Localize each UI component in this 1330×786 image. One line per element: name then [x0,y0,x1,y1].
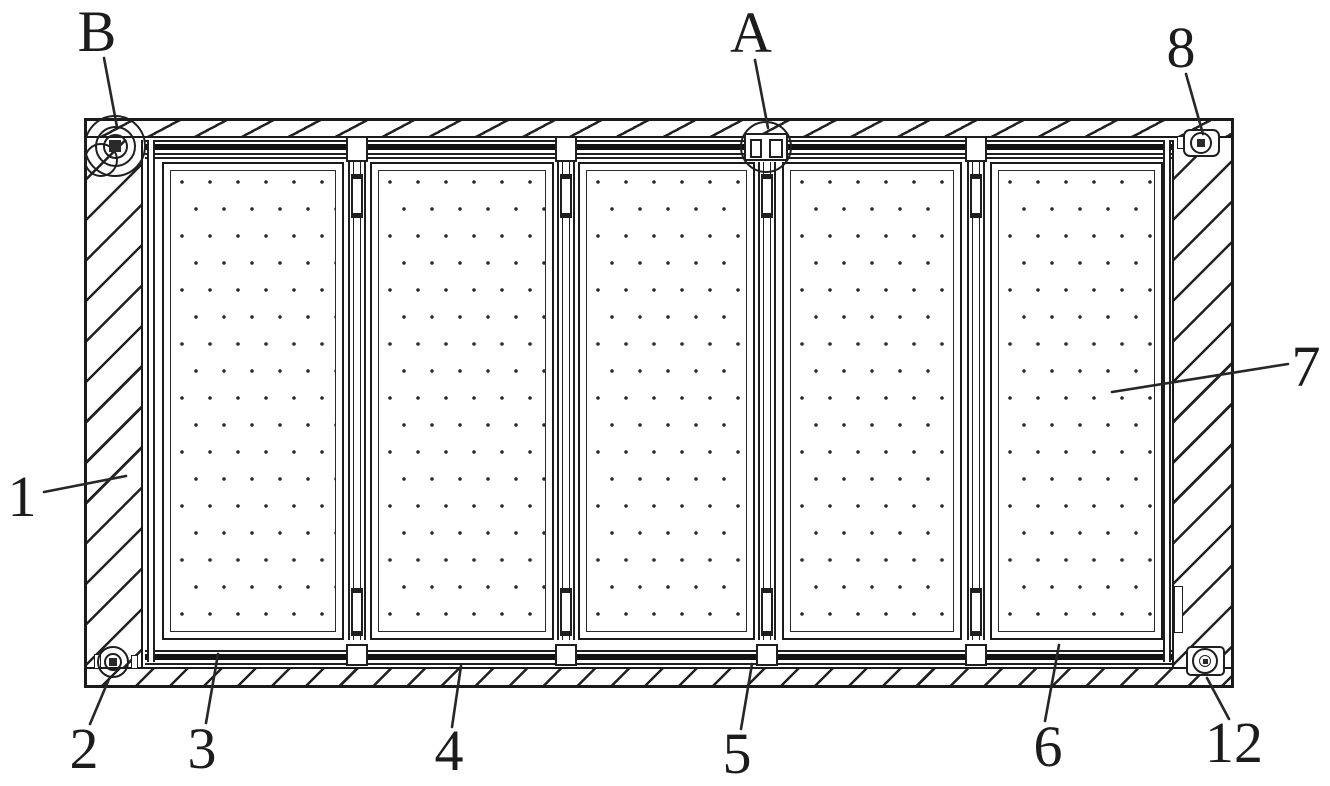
leader-line-B [104,58,117,127]
leader-line-6 [1045,645,1059,721]
ref-label-3: 3 [188,720,217,778]
patent-drawing-canvas: BA8172345612 [0,0,1330,786]
leader-line-7 [1112,364,1288,392]
ref-label-1: 1 [8,468,37,526]
leader-line-8 [1186,74,1203,134]
ref-label-4: 4 [435,722,464,780]
ref-label-B: B [78,3,117,61]
ref-label-12: 12 [1205,714,1263,772]
ref-label-7: 7 [1292,338,1321,396]
leader-line-5 [741,664,752,729]
ref-label-2: 2 [70,720,99,778]
ref-label-A: A [730,4,772,62]
ref-label-6: 6 [1034,718,1063,776]
ref-label-8: 8 [1167,19,1196,77]
leader-line-3 [206,654,218,723]
leader-lines-layer [0,0,1330,786]
leader-line-A [755,60,768,128]
leader-line-1 [44,476,126,492]
ref-label-5: 5 [723,725,752,783]
